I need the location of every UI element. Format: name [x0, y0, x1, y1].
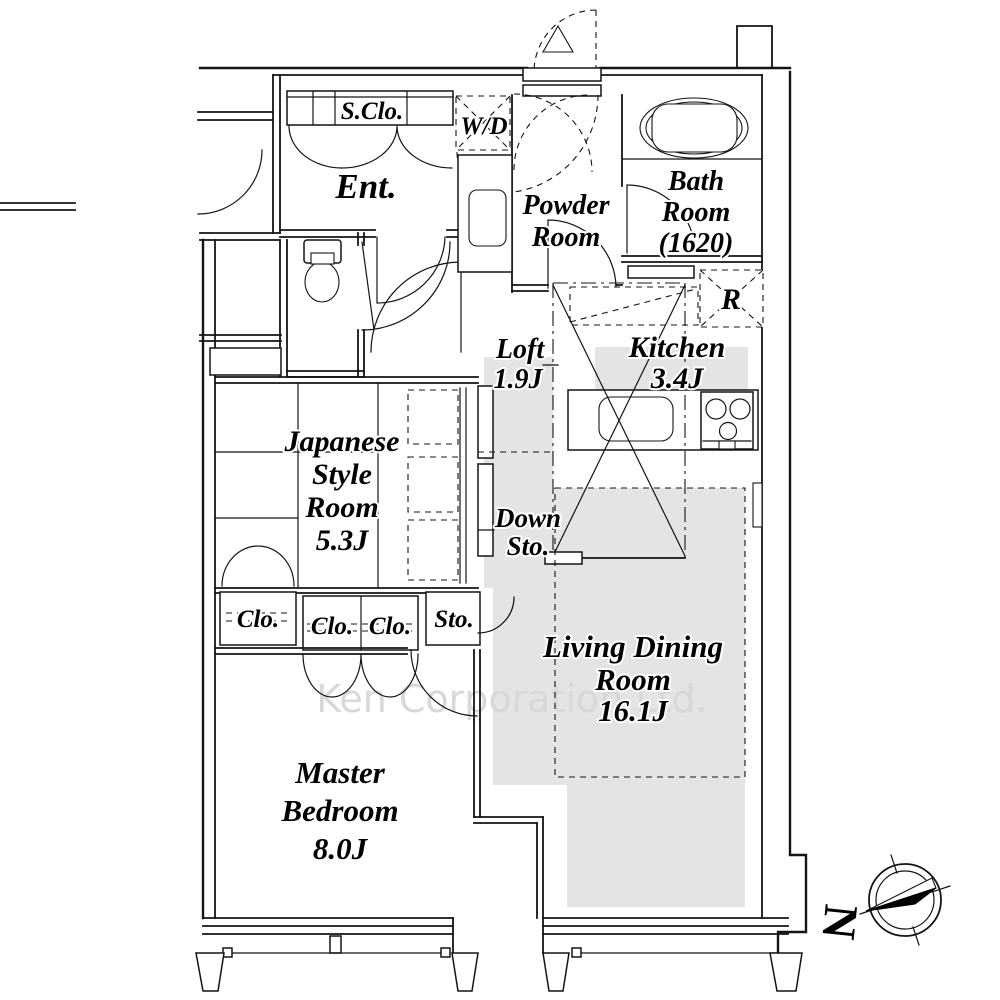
japanese-label-2: Style — [312, 458, 372, 491]
front-door — [523, 68, 601, 81]
living-label-1: Living Dining — [542, 629, 723, 664]
kitchen-sink — [599, 397, 673, 441]
powder-room-label-2: Room — [531, 222, 600, 253]
refrigerator-label: R — [720, 283, 741, 316]
bath-label-1: Bath — [667, 166, 724, 197]
sliding-doors — [460, 388, 466, 583]
japanese-label-3: Room — [304, 491, 378, 524]
japanese-label-4: 5.3J — [316, 524, 370, 557]
closet-mid-a-label: Clo. — [311, 613, 353, 640]
closet-door-arcs — [222, 546, 294, 586]
powder-room-label-1: Powder — [521, 190, 610, 221]
entrance-direction-icon — [543, 26, 573, 52]
closet-mid-b-label: Clo. — [369, 613, 411, 640]
loft-label-2: 1.9J — [494, 364, 544, 395]
hall-door-arc — [377, 237, 445, 303]
floor-plan: Ken Corporation Ltd. — [0, 0, 1000, 1000]
down-storage-label-2: Sto. — [507, 531, 550, 561]
living-label-2: Room — [594, 662, 671, 697]
powder-door-swings — [514, 94, 592, 172]
washer-dryer-label: W/D — [460, 113, 507, 140]
storage-label: Sto. — [434, 606, 474, 633]
loft-stair — [478, 464, 493, 556]
front-door-swing-in — [500, 95, 598, 193]
toilet-bowl — [305, 262, 339, 302]
hallway-toilet — [200, 233, 478, 383]
kitchen-label-2: 3.4J — [650, 362, 705, 395]
vanity-sink — [469, 190, 506, 246]
toilet-door-arc — [362, 242, 450, 330]
entrance-label: Ent. — [334, 167, 396, 206]
master-label-1: Master — [294, 755, 386, 790]
pier — [452, 953, 478, 991]
closet-left-label: Clo. — [237, 606, 279, 633]
living-label-3: 16.1J — [598, 693, 669, 728]
compass: N — [811, 855, 950, 945]
pier — [543, 953, 569, 991]
loft-label-1: Loft — [495, 334, 545, 365]
shoe-closet-label: S.Clo. — [341, 98, 404, 125]
hall-cabinet — [210, 348, 281, 375]
balcony — [196, 918, 802, 991]
oshiire-closet-dashes — [408, 390, 458, 580]
bedroom-window — [203, 918, 453, 934]
shoe-closet-door-arcs — [289, 126, 452, 168]
kitchen-label-1: Kitchen — [628, 331, 726, 364]
loft-stair — [478, 386, 493, 458]
north-label: N — [811, 902, 867, 942]
range-hood — [570, 287, 698, 325]
down-storage-label-1: Down — [494, 503, 561, 533]
living-window — [543, 918, 788, 934]
kitchen-step — [545, 552, 582, 564]
pier — [196, 953, 224, 991]
bath-label-2: Room — [661, 197, 730, 228]
bath-label-3: (1620) — [659, 228, 734, 259]
master-label-2: Bedroom — [280, 793, 398, 828]
hall-kitchen-door-arc — [371, 262, 461, 352]
japanese-label-1: Japanese — [284, 425, 400, 458]
bath-shelf — [628, 266, 694, 278]
pier — [770, 953, 802, 991]
master-label-3: 8.0J — [313, 831, 369, 866]
